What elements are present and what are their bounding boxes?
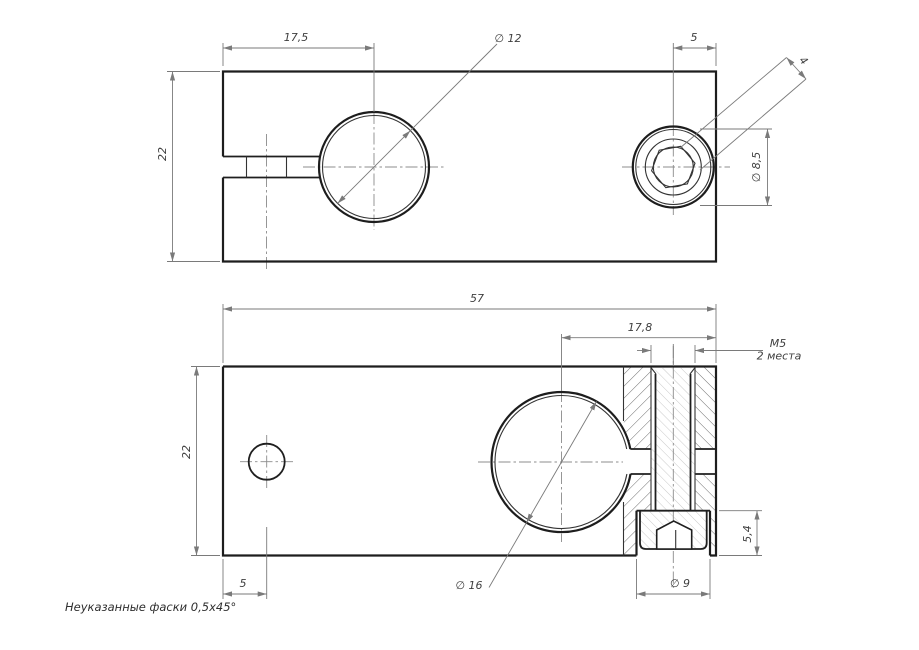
engineering-drawing-canvas: 17,5 ∅ 12 5 22 ∅ 8,5 bbox=[0, 0, 919, 650]
dim-section-bore: ∅ 16 bbox=[455, 401, 596, 592]
dim-section-height-label: 22 bbox=[180, 445, 193, 459]
thread-callout-line2: 2 места bbox=[757, 350, 802, 363]
front-outline bbox=[223, 72, 716, 262]
dim-section-length-label: 57 bbox=[470, 292, 484, 305]
hatch-upper-right bbox=[695, 367, 716, 450]
dim-front-height: 22 bbox=[156, 72, 220, 262]
dim-side-hole-offset: 5 bbox=[223, 527, 267, 599]
dim-front-hole-offset-label: 17,5 bbox=[284, 31, 309, 44]
clamp-block-drawing: 17,5 ∅ 12 5 22 ∅ 8,5 bbox=[0, 0, 919, 650]
dim-counterbore-dia-label: ∅ 9 bbox=[670, 577, 690, 590]
thread-callout-line1: M5 bbox=[770, 337, 787, 350]
dim-side-hole-offset-label: 5 bbox=[240, 577, 247, 590]
dim-front-height-label: 22 bbox=[156, 147, 169, 161]
dim-front-screw-to-edge: 5 bbox=[673, 31, 716, 124]
thread-callout-m5: M5 2 места bbox=[637, 337, 802, 366]
dim-front-bore-label: ∅ 12 bbox=[494, 32, 521, 45]
dim-screw-head-dia-label: ∅ 8,5 bbox=[750, 152, 763, 183]
dim-front-bore: ∅ 12 bbox=[338, 32, 522, 203]
dim-hex-socket-label: 4 bbox=[797, 54, 810, 67]
dim-screw-position-label: 17,8 bbox=[628, 321, 653, 334]
dim-section-height: 22 bbox=[180, 367, 220, 556]
dim-section-bore-label: ∅ 16 bbox=[455, 579, 482, 592]
note-unspecified-chamfers: Неуказанные фаски 0,5x45° bbox=[65, 600, 236, 614]
dim-counterbore-depth-label: 5,4 bbox=[741, 525, 754, 543]
dim-front-screw-to-edge-label: 5 bbox=[691, 31, 698, 44]
dim-counterbore-depth: 5,4 bbox=[719, 511, 762, 556]
section-view: 57 17,8 M5 2 места 22 bbox=[180, 292, 802, 599]
dim-counterbore-dia: ∅ 9 bbox=[637, 559, 711, 599]
front-view: 17,5 ∅ 12 5 22 ∅ 8,5 bbox=[156, 31, 810, 270]
